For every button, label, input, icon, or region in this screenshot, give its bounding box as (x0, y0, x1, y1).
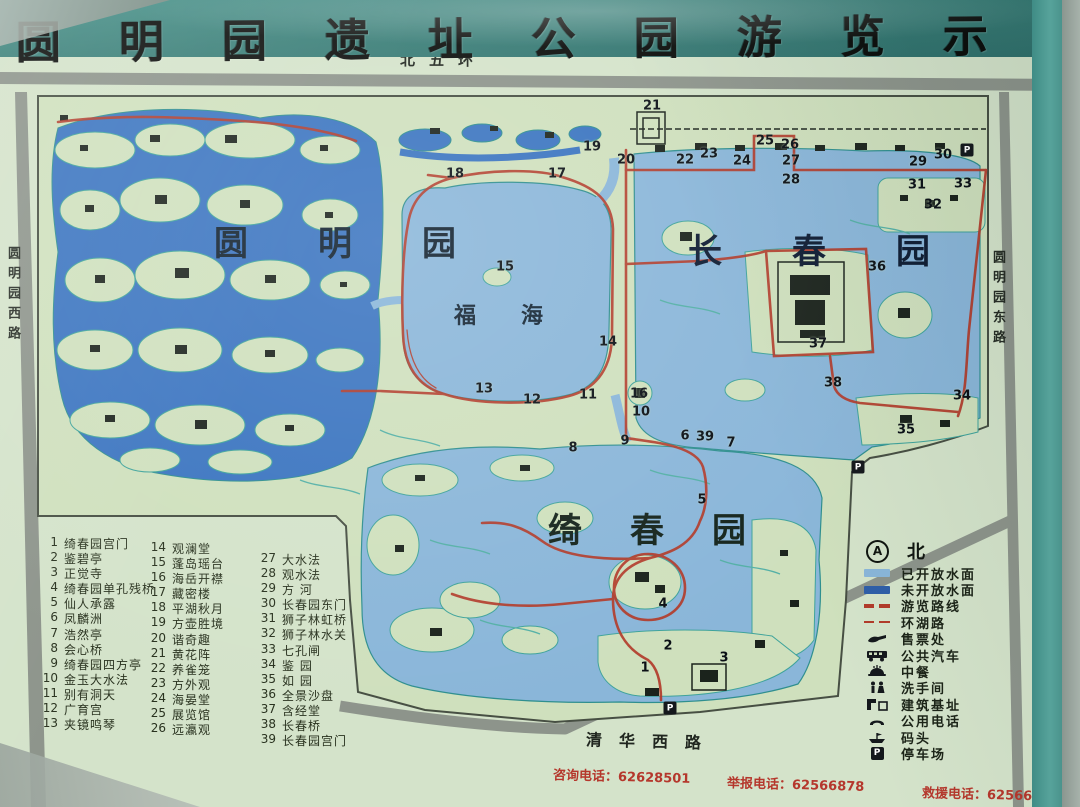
index-item-number: 35 (258, 672, 276, 687)
index-item-name: 方 河 (282, 581, 313, 596)
contact-label: 咨询电话 (553, 768, 605, 784)
lake-road-icon (862, 621, 892, 623)
contact-label: 举报电话 (727, 776, 779, 792)
index-item-number: 15 (148, 555, 166, 570)
contact-number: 62628501 (618, 770, 691, 787)
index-item-number: 2 (40, 550, 58, 565)
label-yuanmingyuan-west-road: 圆明园西路 (3, 246, 22, 346)
index-item: 14 观澜堂 (148, 540, 224, 555)
index-item: 15 蓬岛瑶台 (148, 555, 224, 570)
index-item: 7 浩然亭 (40, 626, 155, 641)
legend-row: 公共汽车 (862, 647, 976, 663)
legend-row: 未开放水面 (862, 581, 976, 597)
index-item: 38 长春桥 (258, 717, 347, 732)
index-item-number: 38 (258, 717, 276, 732)
water-open-icon (862, 569, 892, 577)
restaurant-icon (862, 665, 892, 678)
label-yuanmingyuan-east-road: 圆明园东路 (988, 250, 1007, 350)
index-item-number: 27 (258, 551, 276, 566)
contact-consult-phone: 咨询电话：62628501 (553, 764, 691, 787)
index-item-number: 1 (40, 535, 58, 550)
index-item-name: 长春桥 (282, 717, 321, 732)
index-column-3: 27 大水法 28 观水法 29 方 河 30 长春园东门 31 狮子林虹桥 (258, 551, 347, 747)
water-closed-icon (862, 586, 892, 594)
building-site-icon (862, 698, 892, 711)
index-item-number: 26 (148, 721, 166, 736)
label-yuanmingyuan: 圆明园 (214, 216, 526, 265)
contact-report-phone: 举报电话：62566878 (727, 772, 865, 795)
park-map-sign-photo: 圆明园遗址公园游览示意图 圆明园 长春园 绮春园 福海 北五环 清华西路 圆明园… (0, 0, 1080, 807)
index-item-name: 凤麟洲 (64, 610, 103, 625)
index-item-name: 长春园宫门 (282, 732, 347, 747)
index-item-name: 绮春园单孔残桥 (64, 580, 155, 595)
index-item: 19 方壶胜境 (148, 615, 224, 630)
index-item-name: 如 园 (282, 672, 313, 687)
index-item-number: 24 (148, 691, 166, 706)
index-item: 28 观水法 (258, 566, 347, 581)
north-compass-icon: A (866, 540, 889, 563)
legend-north-label: 北 (907, 538, 927, 564)
index-item-number: 14 (148, 540, 166, 555)
index-item: 21 黄花阵 (148, 646, 224, 661)
index-item: 16 海岳开襟 (148, 570, 224, 585)
index-item: 6 凤麟洲 (40, 610, 155, 625)
index-item-number: 37 (258, 702, 276, 717)
index-item-number: 16 (148, 570, 166, 585)
index-item-name: 展览馆 (172, 706, 211, 721)
index-item: 17 藏密楼 (148, 585, 224, 600)
dock-icon (862, 731, 892, 744)
index-item: 23 方外观 (148, 676, 224, 691)
index-item-number: 18 (148, 600, 166, 615)
index-item-number: 23 (148, 676, 166, 691)
index-item-number: 21 (148, 646, 166, 661)
legend-row: 游览路线 (862, 598, 976, 614)
index-item-number: 11 (40, 686, 58, 701)
index-item: 30 长春园东门 (258, 596, 347, 611)
index-item-number: 39 (258, 732, 276, 747)
legend-label: 停车场 (901, 744, 946, 763)
index-item-name: 狮子林水关 (282, 626, 347, 641)
index-item: 31 狮子林虹桥 (258, 611, 347, 626)
index-item: 20 谐奇趣 (148, 631, 224, 646)
index-item-name: 仙人承露 (64, 595, 116, 610)
restroom-icon (862, 681, 892, 694)
index-item: 3 正觉寺 (40, 565, 155, 580)
contact-number: 62566878 (792, 778, 865, 795)
index-item-name: 平湖秋月 (172, 600, 224, 615)
index-item-name: 浩然亭 (64, 626, 103, 641)
legend-row: 已开放水面 (862, 565, 976, 581)
contact-label: 救援电话 (922, 786, 974, 802)
sign-frame-right-teal (1032, 0, 1062, 807)
index-item-name: 别有洞天 (64, 686, 116, 701)
index-item-number: 10 (40, 671, 58, 686)
index-item-name: 全景沙盘 (282, 687, 334, 702)
index-item-number: 36 (258, 687, 276, 702)
index-item: 12 广育宫 (40, 701, 155, 716)
ticket-office-icon (862, 633, 892, 645)
index-item-name: 海岳开襟 (172, 570, 224, 585)
title-band: 圆明园遗址公园游览示意图 (0, 0, 1080, 57)
index-item-number: 29 (258, 581, 276, 596)
index-item: 10 金玉大水法 (40, 671, 155, 686)
index-item-number: 6 (40, 610, 58, 625)
index-item-name: 大水法 (282, 551, 321, 566)
index-item-name: 正觉寺 (64, 565, 103, 580)
index-item: 35 如 园 (258, 672, 347, 687)
sign-frame-right-gray (1062, 0, 1080, 807)
index-item: 4 绮春园单孔残桥 (40, 580, 155, 595)
index-item-name: 方壶胜境 (172, 615, 224, 630)
index-item: 22 养雀笼 (148, 661, 224, 676)
parking-legend-icon: P (862, 747, 892, 760)
index-item-number: 13 (40, 716, 58, 731)
index-item-name: 方外观 (172, 676, 211, 691)
index-item-name: 远瀛观 (172, 721, 211, 736)
index-item-number: 4 (40, 580, 58, 595)
legend-row: 公用电话 (862, 713, 976, 729)
bus-icon (862, 649, 892, 662)
index-item-name: 金玉大水法 (64, 671, 129, 686)
index-item-number: 20 (148, 631, 166, 646)
index-item-number: 25 (148, 706, 166, 721)
telephone-icon (862, 715, 892, 727)
index-item-number: 5 (40, 595, 58, 610)
index-item-name: 绮春园四方亭 (64, 656, 142, 671)
index-item-name: 鉴碧亭 (64, 550, 103, 565)
legend-row: 洗手间 (862, 680, 976, 696)
index-item-name: 七孔闸 (282, 642, 321, 657)
index-item: 2 鉴碧亭 (40, 550, 155, 565)
index-item: 25 展览馆 (148, 706, 224, 721)
index-item-name: 谐奇趣 (172, 631, 211, 646)
index-item-number: 19 (148, 615, 166, 630)
index-item: 11 别有洞天 (40, 686, 155, 701)
index-item: 34 鉴 园 (258, 657, 347, 672)
legend-row: 码头 (862, 729, 976, 745)
label-qinghua-west-road: 清华西路 (586, 726, 719, 753)
index-item: 32 狮子林水关 (258, 626, 347, 641)
index-item-number: 33 (258, 642, 276, 657)
index-item: 13 夹镜鸣琴 (40, 716, 155, 731)
index-item-number: 12 (40, 701, 58, 716)
index-item-name: 长春园东门 (282, 596, 347, 611)
index-item-number: 22 (148, 661, 166, 676)
index-item-number: 3 (40, 565, 58, 580)
index-item-name: 黄花阵 (172, 646, 211, 661)
index-item-name: 广育宫 (64, 701, 103, 716)
index-item-name: 养雀笼 (172, 661, 211, 676)
index-item-name: 蓬岛瑶台 (172, 555, 224, 570)
index-item: 5 仙人承露 (40, 595, 155, 610)
index-item-number: 7 (40, 626, 58, 641)
index-item: 37 含经堂 (258, 702, 347, 717)
index-item: 8 会心桥 (40, 641, 155, 656)
legend-row: 中餐 (862, 663, 976, 679)
index-item: 24 海晏堂 (148, 691, 224, 706)
tour-route-icon (862, 604, 892, 608)
index-item-name: 会心桥 (64, 641, 103, 656)
legend-row: 环湖路 (862, 614, 976, 630)
index-item-name: 含经堂 (282, 702, 321, 717)
index-item-number: 28 (258, 566, 276, 581)
index-item-number: 30 (258, 596, 276, 611)
index-item: 36 全景沙盘 (258, 687, 347, 702)
label-qichunyuan: 绮春园 (548, 503, 794, 552)
index-item: 18 平湖秋月 (148, 600, 224, 615)
index-item-name: 藏密楼 (172, 585, 211, 600)
glass-glare (0, 0, 1080, 57)
index-item-number: 17 (148, 585, 166, 600)
legend-row: P 停车场 (862, 745, 976, 761)
index-item-number: 34 (258, 657, 276, 672)
map-legend: A 北 已开放水面 未开放水面 游览路线 环湖路 售票处 (862, 539, 976, 762)
index-item-name: 观澜堂 (172, 540, 211, 555)
label-fuhai-lake: 福海 (454, 298, 588, 330)
index-item-name: 绮春园宫门 (64, 535, 129, 550)
index-item: 39 长春园宫门 (258, 732, 347, 747)
index-column-1: 1 绮春园宫门 2 鉴碧亭 3 正觉寺 4 绮春园单孔残桥 5 仙人承露 (40, 535, 155, 731)
index-item-number: 31 (258, 611, 276, 626)
index-item: 29 方 河 (258, 581, 347, 596)
index-item-number: 8 (40, 641, 58, 656)
index-item-number: 9 (40, 656, 58, 671)
label-changchunyuan: 长春园 (688, 224, 1000, 273)
index-item: 27 大水法 (258, 551, 347, 566)
index-item-name: 鉴 园 (282, 657, 313, 672)
index-item-name: 狮子林虹桥 (282, 611, 347, 626)
index-item: 1 绮春园宫门 (40, 535, 155, 550)
index-item-name: 海晏堂 (172, 691, 211, 706)
legend-north-row: A 北 (862, 539, 976, 563)
index-item: 33 七孔闸 (258, 642, 347, 657)
legend-row: 建筑基址 (862, 696, 976, 712)
index-item-name: 观水法 (282, 566, 321, 581)
index-item-name: 夹镜鸣琴 (64, 716, 116, 731)
index-item: 26 远瀛观 (148, 721, 224, 736)
index-item-number: 32 (258, 626, 276, 641)
index-column-2: 14 观澜堂 15 蓬岛瑶台 16 海岳开襟 17 藏密楼 18 平湖秋月 (148, 540, 224, 736)
legend-row: 售票处 (862, 631, 976, 647)
index-item: 9 绮春园四方亭 (40, 656, 155, 671)
